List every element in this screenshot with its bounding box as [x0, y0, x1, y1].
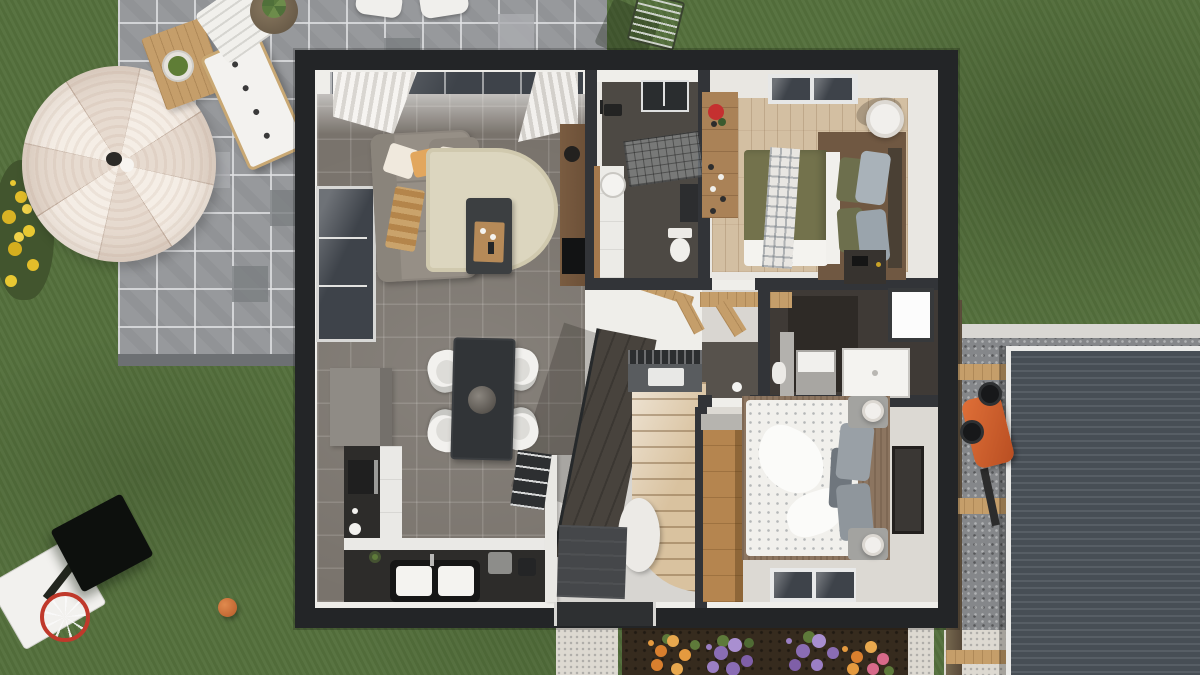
bed2-lamp — [862, 534, 884, 556]
driveway-edge-strip — [958, 324, 1200, 338]
kitchen-sink — [390, 560, 480, 602]
window-pane — [774, 572, 812, 598]
bedroom2-window-frame — [770, 568, 856, 602]
faucet — [430, 554, 434, 566]
kitchen-counter-front — [344, 538, 545, 550]
wardrobe-top-shelf — [701, 414, 745, 430]
purple-flower-cluster — [706, 644, 712, 650]
coffee-table — [466, 198, 512, 274]
bedroom2-wardrobe — [703, 430, 743, 602]
floor-plan-render — [0, 0, 1200, 675]
kettle — [518, 558, 536, 576]
white-gravel-strip — [908, 628, 934, 675]
skylight-window — [641, 80, 689, 112]
shower-drain — [872, 370, 878, 376]
paver-tile-light — [498, 14, 534, 50]
sink-basin — [396, 566, 432, 596]
nook-dark-floor — [702, 342, 758, 398]
red-flowers — [708, 104, 724, 120]
wall-nook-bath2 — [758, 290, 770, 400]
shower-head — [604, 104, 622, 116]
patio-curb — [118, 354, 298, 366]
sink-basin — [438, 566, 474, 596]
pendant-lamp — [468, 386, 496, 414]
salad-greens — [165, 53, 191, 79]
white-gravel-path — [556, 628, 618, 675]
window-pane — [816, 572, 854, 598]
orange-pink-flower-cluster — [842, 646, 848, 652]
entry-door-mat — [557, 525, 627, 599]
wall-horizontal-a — [585, 278, 712, 290]
stair-shelf — [628, 364, 702, 392]
orange-flower-cluster — [648, 640, 654, 646]
yellow-flowers — [10, 180, 16, 186]
speaker — [564, 146, 580, 162]
bed1-nightstand — [844, 250, 886, 284]
carport-beam — [946, 650, 1012, 664]
shelf-item-white — [648, 368, 684, 386]
flower-bed-soil — [622, 628, 910, 675]
shoes-row — [708, 164, 714, 170]
umbrella-pole — [106, 152, 122, 166]
bed1-headboard — [888, 148, 902, 268]
bath2-sink-top — [798, 352, 834, 372]
stair-shelf-slats — [628, 350, 702, 364]
drum-lamp — [866, 100, 904, 138]
bedroom1-window-frame — [768, 74, 858, 104]
wall-horizontal-c — [698, 395, 712, 407]
carport-roof — [1006, 346, 1200, 675]
bed1-sheet-strip — [826, 152, 840, 264]
front-door — [554, 602, 656, 626]
bath2-shower-tray — [842, 348, 910, 398]
bath2-wood-shelf — [770, 292, 792, 308]
living-left-window — [316, 186, 376, 342]
mower-wheel — [960, 420, 984, 444]
nightstand-knob — [876, 262, 881, 267]
kitchen-plant — [372, 554, 378, 560]
window-mullion — [319, 285, 367, 287]
bath2-toilet — [772, 362, 786, 384]
basketball — [218, 598, 237, 617]
espresso-machine — [348, 460, 378, 494]
toilet-tank — [668, 228, 692, 238]
kitchen-jars — [352, 508, 358, 514]
mower-wheel — [978, 382, 1002, 406]
skylight-mullion — [663, 82, 665, 106]
tray-cups — [480, 228, 486, 234]
window-pane — [814, 78, 852, 100]
window-pane — [772, 78, 810, 100]
shower-arm — [600, 100, 603, 114]
paver-tile-dark — [232, 266, 268, 302]
bed2-lamp — [862, 400, 884, 422]
pillow-gray — [835, 422, 875, 481]
bathroom-dark-panel — [680, 184, 698, 222]
tray-bottle — [488, 242, 494, 254]
cooker-hood-cabinet — [330, 368, 392, 446]
bath2-window — [888, 288, 934, 342]
kitchen-cabinet-fronts — [380, 446, 402, 546]
purple-flower-cluster — [786, 638, 792, 644]
paper-roll — [734, 384, 740, 390]
toilet-bowl — [670, 238, 690, 262]
umbrella-vent — [120, 158, 134, 172]
bath2-vanity-cabinet — [796, 350, 836, 395]
basketball-hoop-net — [40, 592, 90, 642]
toaster — [488, 552, 512, 574]
window-mullion — [319, 237, 367, 239]
wall-art — [892, 446, 924, 534]
vanity-sink-bowl — [600, 172, 626, 198]
nightstand-item — [852, 256, 868, 266]
